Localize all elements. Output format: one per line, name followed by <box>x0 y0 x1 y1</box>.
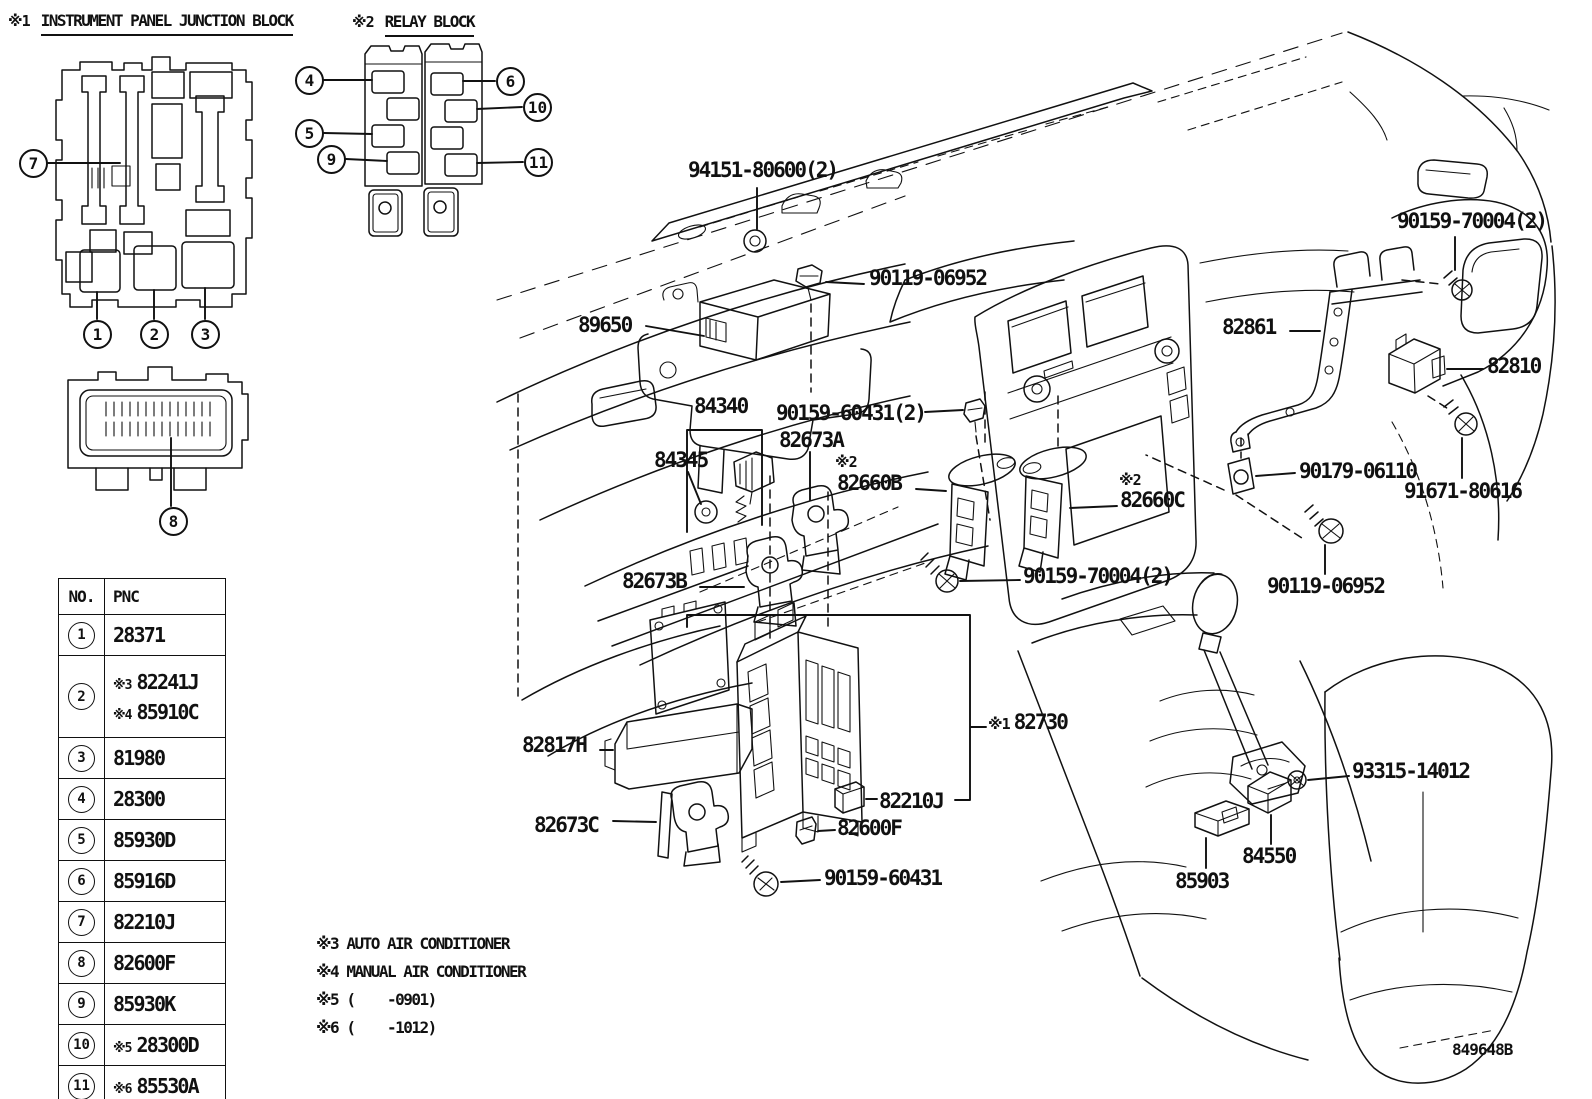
callout-2[interactable]: 2 <box>140 320 169 349</box>
pnc-code[interactable]: 28300D <box>136 1033 197 1057</box>
table-row: 8 82600F <box>59 943 226 984</box>
callout-3[interactable]: 3 <box>191 320 220 349</box>
part-label-82210J[interactable]: 82210J <box>879 791 943 812</box>
pnc-note-mark: ※4 <box>113 708 131 723</box>
part-label-82660C[interactable]: 82660C <box>1120 490 1184 511</box>
callout-11[interactable]: 11 <box>524 148 553 177</box>
part-label-82817H[interactable]: 82817H <box>522 735 586 756</box>
note-mark-2-left: ※2 <box>835 455 857 470</box>
part-label-90159-60431[interactable]: 90159-60431 <box>824 868 941 889</box>
junction-note-mark: ※1 <box>8 12 30 30</box>
part-label-82861[interactable]: 82861 <box>1222 317 1275 338</box>
relay-block-title: ※2RELAY BLOCK <box>352 12 474 31</box>
parts-diagram-page: ※1INSTRUMENT PANEL JUNCTION BLOCK ※2RELA… <box>0 0 1592 1099</box>
pnc-code[interactable]: 82210J <box>113 910 174 934</box>
pnc-note-mark: ※5 <box>113 1041 131 1056</box>
pnc-code[interactable]: 85530A <box>136 1074 197 1098</box>
table-row: 10 ※528300D <box>59 1025 226 1066</box>
part-label-90119-06952-lower[interactable]: 90119-06952 <box>1267 576 1384 597</box>
part-label-90119-06952-upper[interactable]: 90119-06952 <box>869 268 986 289</box>
pnc-code[interactable]: 82600F <box>113 951 174 975</box>
callout-1[interactable]: 1 <box>83 320 112 349</box>
table-header-no: NO. <box>59 579 105 615</box>
table-row: 5 85930D <box>59 820 226 861</box>
row-callout: 9 <box>68 991 95 1018</box>
footnote-6: ※6 ( -1012) <box>316 1018 436 1037</box>
pnc-code[interactable]: 81980 <box>113 746 164 770</box>
row-callout: 3 <box>68 745 95 772</box>
footnote-4: ※4 MANUAL AIR CONDITIONER <box>316 962 525 981</box>
part-label-90159-70004-top[interactable]: 90159-70004(2) <box>1397 211 1546 232</box>
pnc-table: NO. PNC 1 28371 2 ※382241J ※485910C 3 81… <box>58 578 226 1099</box>
callout-6[interactable]: 6 <box>496 67 525 96</box>
table-row: 4 28300 <box>59 779 226 820</box>
callout-7[interactable]: 7 <box>19 149 48 178</box>
part-label-84340[interactable]: 84340 <box>694 396 747 417</box>
table-header-pnc: PNC <box>105 579 226 615</box>
row-callout: 11 <box>68 1073 95 1099</box>
part-label-89650[interactable]: 89650 <box>578 315 631 336</box>
connector-art <box>68 367 248 506</box>
table-row: 6 85916D <box>59 861 226 902</box>
callout-8[interactable]: 8 <box>159 507 188 536</box>
relay-note-mark: ※2 <box>352 13 374 31</box>
callout-5[interactable]: 5 <box>295 119 324 148</box>
part-label-84550[interactable]: 84550 <box>1242 846 1295 867</box>
table-row: 9 85930K <box>59 984 226 1025</box>
note-mark-1: ※1 <box>988 715 1010 733</box>
row-callout: 6 <box>68 868 95 895</box>
part-label-82730[interactable]: ※182730 <box>988 712 1067 733</box>
part-label-90179-06110[interactable]: 90179-06110 <box>1299 461 1416 482</box>
callout-10[interactable]: 10 <box>523 93 552 122</box>
pnc-code[interactable]: 82241J <box>136 670 197 694</box>
part-label-93315-14012[interactable]: 93315-14012 <box>1352 761 1469 782</box>
part-label-84345[interactable]: 84345 <box>654 450 707 471</box>
part-label-90159-60431-2[interactable]: 90159-60431(2) <box>776 403 925 424</box>
table-row: 7 82210J <box>59 902 226 943</box>
table-row: 2 ※382241J ※485910C <box>59 656 226 738</box>
junction-block-art <box>48 57 252 319</box>
row-callout: 5 <box>68 827 95 854</box>
row-callout: 2 <box>68 683 95 710</box>
drawing-number: 849648B <box>1452 1040 1512 1059</box>
part-label-91671-80616[interactable]: 91671-80616 <box>1404 481 1521 502</box>
row-callout: 7 <box>68 909 95 936</box>
row-callout: 1 <box>68 622 95 649</box>
pnc-code[interactable]: 85910C <box>136 700 197 724</box>
part-label-82673B[interactable]: 82673B <box>622 571 686 592</box>
callout-9[interactable]: 9 <box>317 145 346 174</box>
part-label-82810[interactable]: 82810 <box>1487 356 1540 377</box>
dashboard-art <box>497 32 1555 1083</box>
part-label-82673C[interactable]: 82673C <box>534 815 598 836</box>
row-callout: 4 <box>68 786 95 813</box>
part-label-94151-80600[interactable]: 94151-80600(2) <box>688 160 837 181</box>
row-callout: 8 <box>68 950 95 977</box>
row-callout: 10 <box>68 1032 95 1059</box>
pnc-code[interactable]: 85916D <box>113 869 174 893</box>
relay-block-art <box>324 44 523 236</box>
table-row: 1 28371 <box>59 615 226 656</box>
footnote-5: ※5 ( -0901) <box>316 990 436 1009</box>
table-row: 11 ※685530A <box>59 1066 226 1099</box>
part-label-82600F[interactable]: 82600F <box>837 818 901 839</box>
pnc-code[interactable]: 85930D <box>113 828 174 852</box>
pnc-note-mark: ※6 <box>113 1082 131 1097</box>
part-label-82673A[interactable]: 82673A <box>779 430 843 451</box>
pnc-code[interactable]: 28371 <box>113 623 164 647</box>
footnote-3: ※3 AUTO AIR CONDITIONER <box>316 934 509 953</box>
part-label-85903[interactable]: 85903 <box>1175 871 1228 892</box>
part-label-90159-70004-mid[interactable]: 90159-70004(2) <box>1023 566 1172 587</box>
pnc-code[interactable]: 28300 <box>113 787 164 811</box>
callout-4[interactable]: 4 <box>295 66 324 95</box>
part-label-82660B[interactable]: 82660B <box>837 473 901 494</box>
note-mark-2-right: ※2 <box>1119 473 1141 488</box>
table-row: 3 81980 <box>59 738 226 779</box>
pnc-code[interactable]: 85930K <box>113 992 174 1016</box>
pnc-note-mark: ※3 <box>113 678 131 693</box>
junction-block-title: ※1INSTRUMENT PANEL JUNCTION BLOCK <box>8 11 293 30</box>
